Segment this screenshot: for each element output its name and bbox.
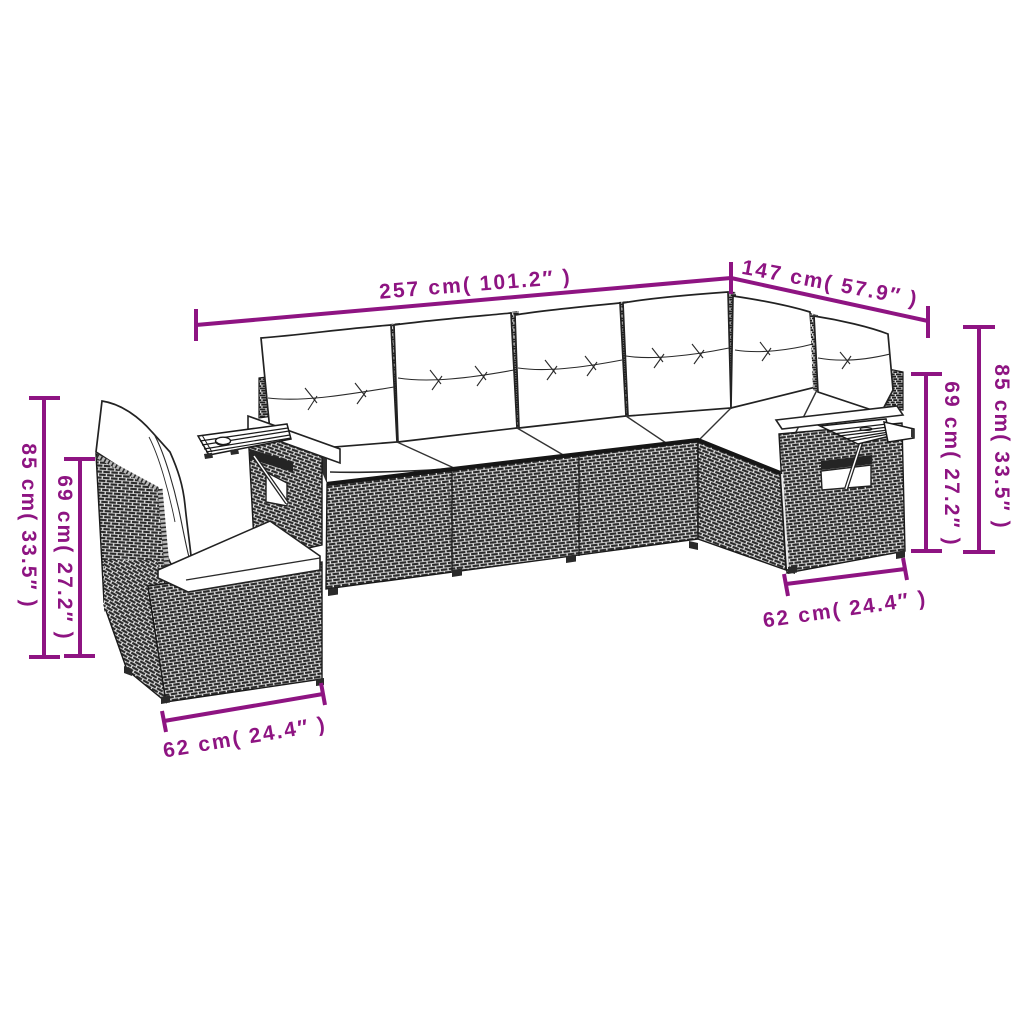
svg-text:85 cm( 33.5″ ): 85 cm( 33.5″ ) xyxy=(17,443,40,609)
svg-text:85 cm( 33.5″ ): 85 cm( 33.5″ ) xyxy=(990,364,1013,530)
svg-text:69 cm( 27.2″ ): 69 cm( 27.2″ ) xyxy=(940,381,963,547)
svg-text:69 cm( 27.2″ ): 69 cm( 27.2″ ) xyxy=(53,475,76,641)
